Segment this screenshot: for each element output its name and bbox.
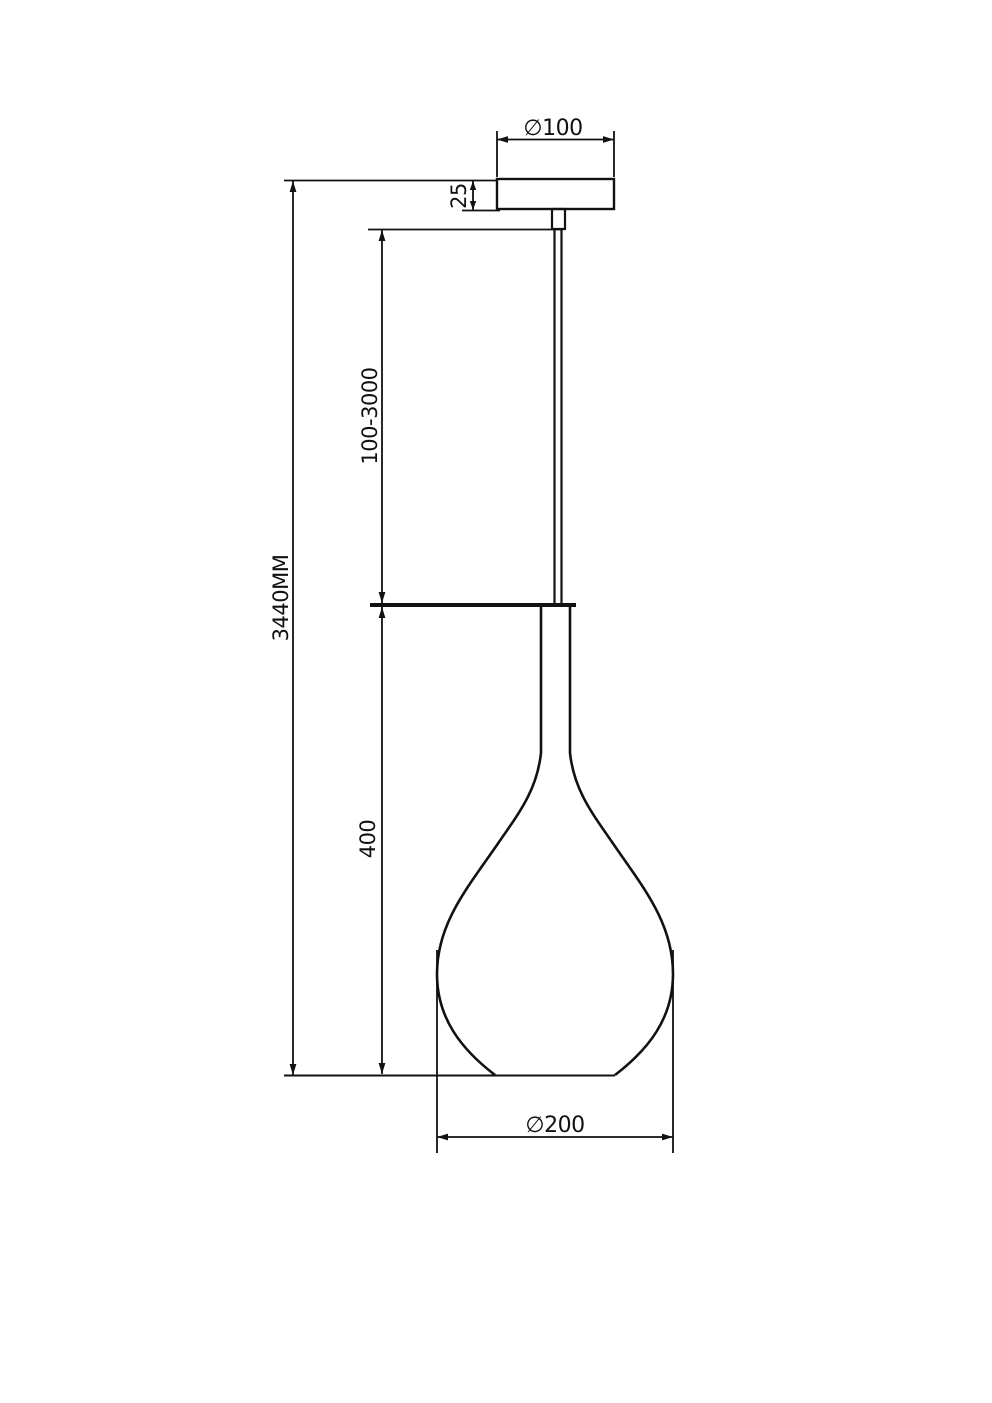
arrow-down-icon [290, 1064, 297, 1075]
suspension-length-label: 100-3000 [358, 367, 382, 464]
dim-canopy-diameter: ∅100 [497, 116, 614, 177]
dim-canopy-height: 25 [447, 181, 500, 211]
canopy-stem [552, 209, 565, 229]
arrow-up-icon [379, 607, 386, 618]
shade-diameter-label: ∅200 [525, 1113, 584, 1138]
pendant-lamp-drawing: ∅100 25 3440MM 100-3000 [0, 0, 992, 1403]
dim-suspension-length: 100-3000 [358, 230, 563, 604]
overall-height-label: 3440MM [269, 555, 293, 642]
arrow-up-icon [379, 230, 386, 241]
canopy [497, 179, 614, 209]
arrow-down-icon [379, 1063, 386, 1074]
suspension-cable [555, 229, 562, 604]
arrow-down-icon [379, 592, 386, 603]
shade-body [437, 607, 673, 1075]
technical-drawing-page: ∅100 25 3440MM 100-3000 [0, 0, 992, 1403]
arrow-up-icon [290, 181, 297, 192]
arrow-left-icon [437, 1134, 448, 1141]
shade-height-label: 400 [356, 820, 380, 859]
arrow-left-icon [497, 136, 508, 143]
dim-shade-height: 400 [356, 607, 385, 1074]
arrow-right-icon [603, 136, 614, 143]
dim-shade-diameter: ∅200 [437, 950, 673, 1153]
arrow-right-icon [662, 1134, 673, 1141]
canopy-diameter-label: ∅100 [523, 116, 582, 141]
lamp-figure [370, 179, 673, 1075]
canopy-height-label: 25 [447, 183, 471, 209]
